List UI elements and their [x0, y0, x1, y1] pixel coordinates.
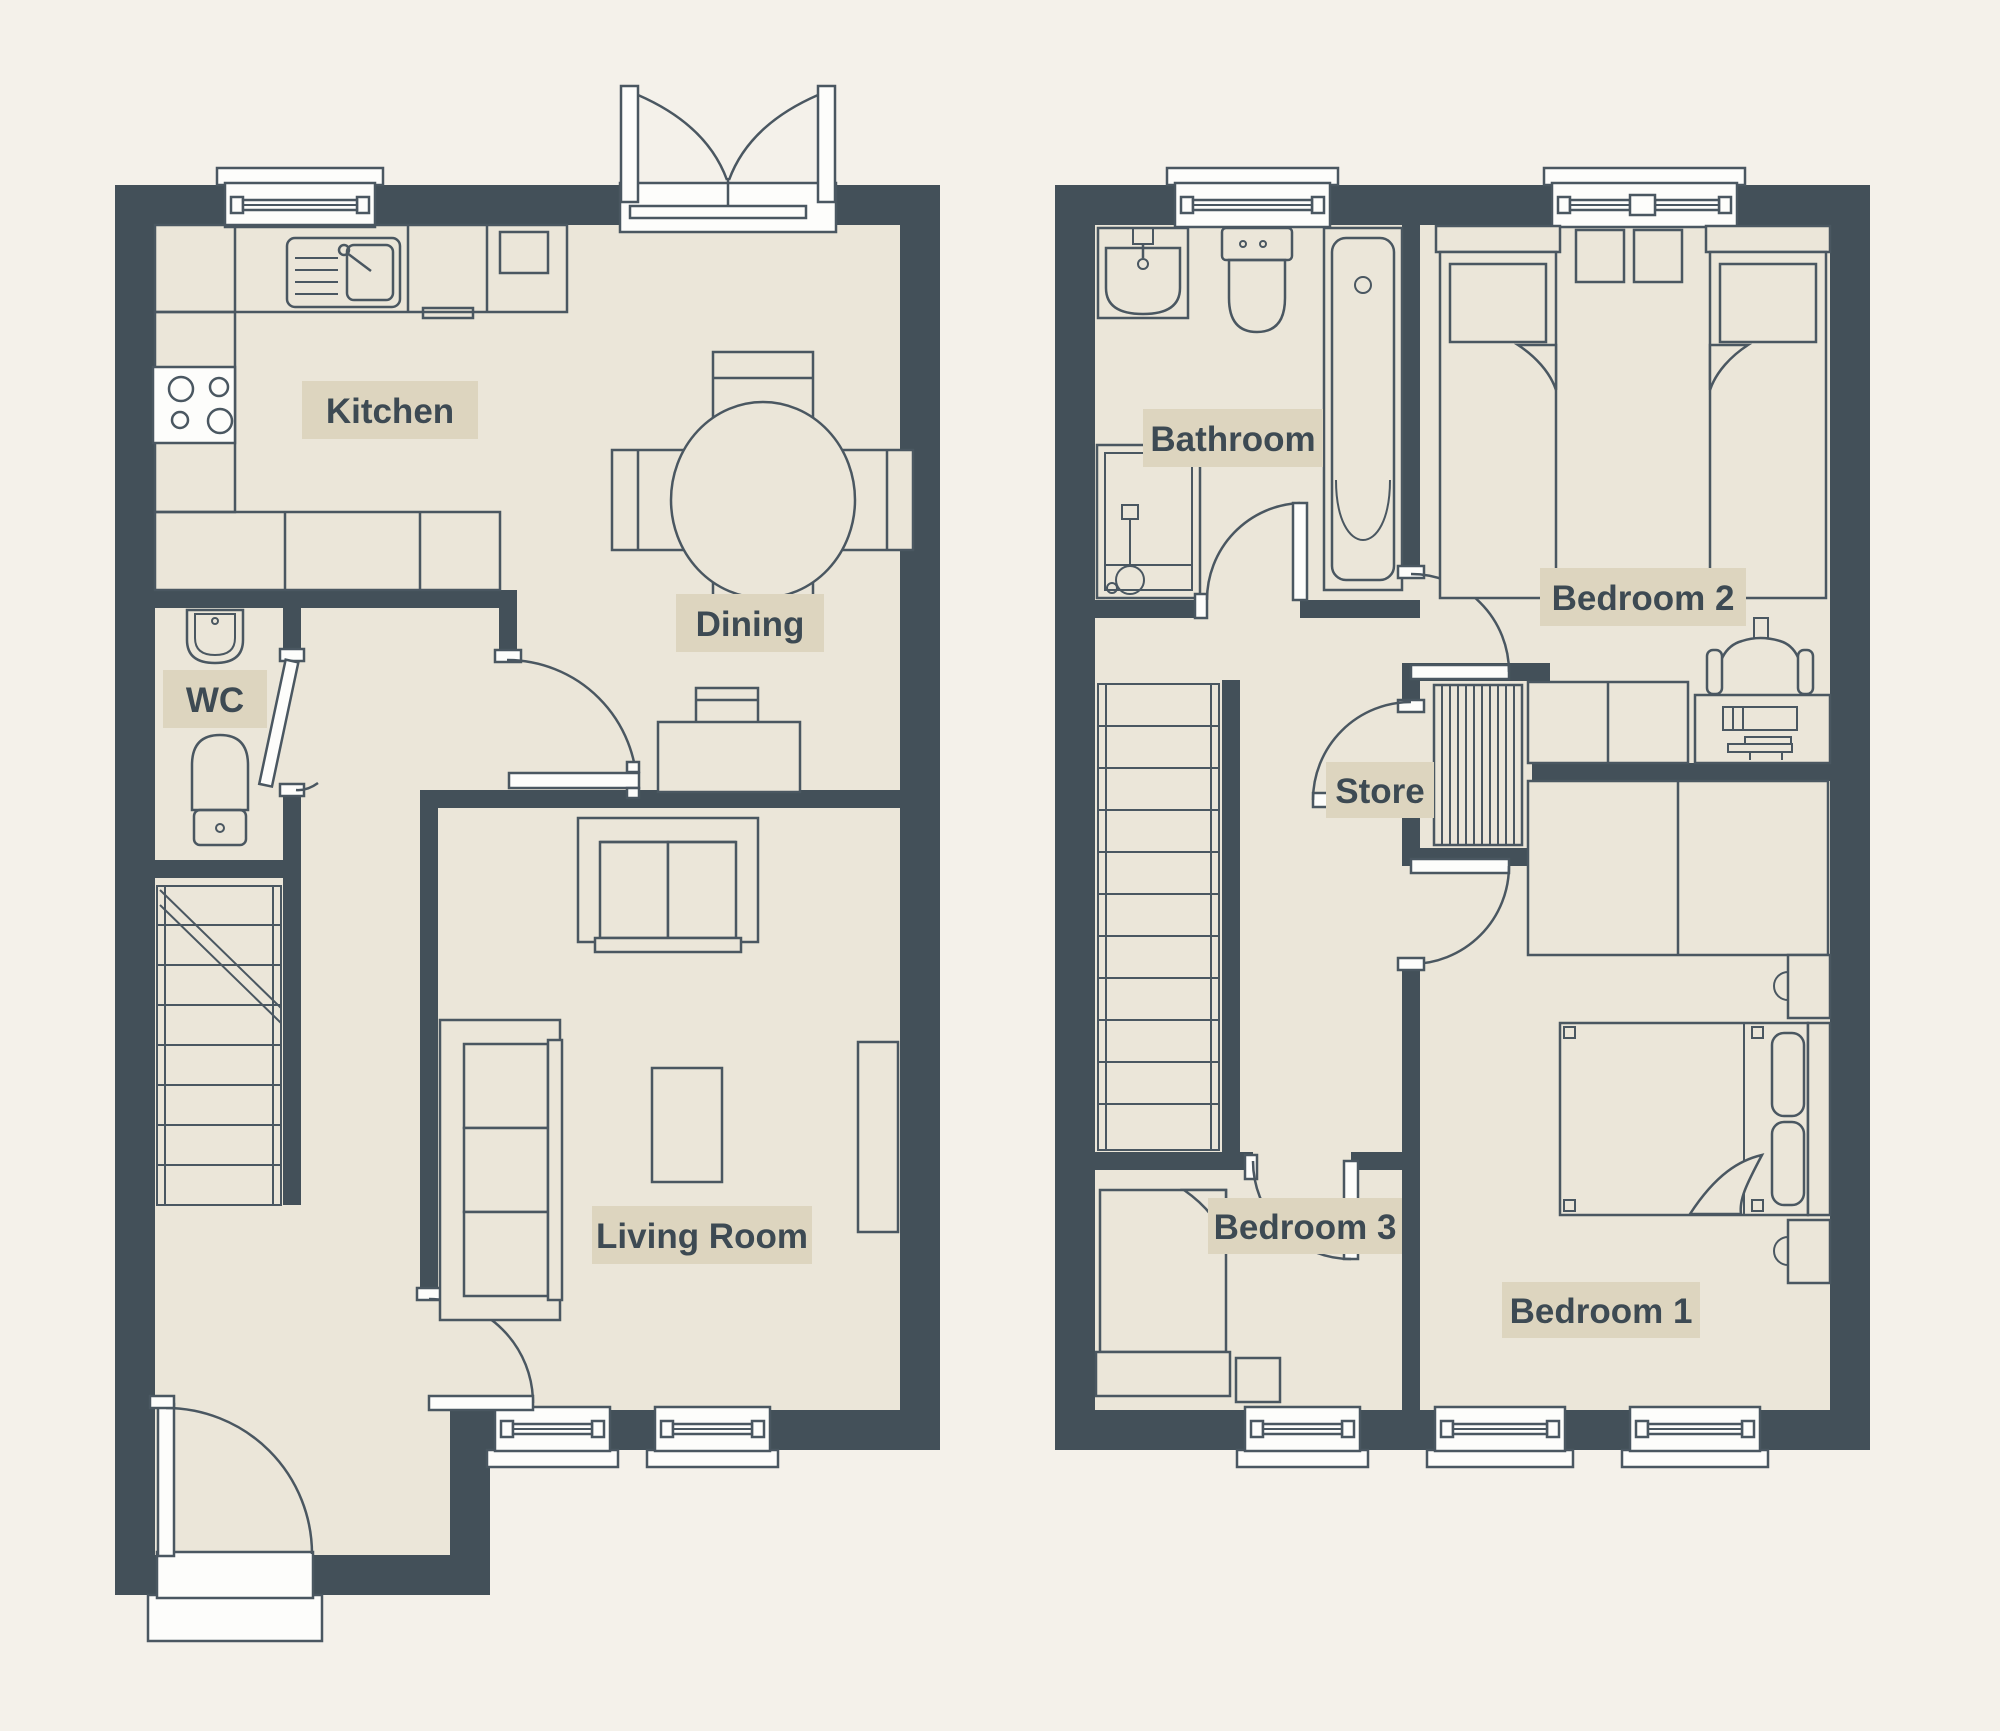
- room-label-living-room: Living Room: [592, 1206, 812, 1264]
- room-label-kitchen: Kitchen: [302, 381, 478, 439]
- living-room-window-icon: [647, 1407, 778, 1467]
- room-label-wc: WC: [163, 670, 267, 728]
- svg-text:Bedroom 2: Bedroom 2: [1552, 579, 1735, 618]
- floorplan-page: Kitchen Dining WC Living Room: [0, 0, 2000, 1731]
- ground-floor-plan: Kitchen Dining WC Living Room: [115, 86, 940, 1641]
- kitchen-window-icon: [217, 168, 383, 227]
- tv-unit-icon: [858, 1042, 898, 1232]
- room-label-dining: Dining: [676, 594, 824, 652]
- coffee-table-icon: [652, 1068, 722, 1182]
- first-floor-plan: Bathroom Bedroom 2 Store Bedroom 3 Bedro…: [1055, 168, 1870, 1467]
- bedroom1-window-icon: [1427, 1407, 1573, 1467]
- room-label-bedroom-2: Bedroom 2: [1540, 568, 1746, 626]
- bedside-table-icon: [1634, 230, 1682, 282]
- bathroom-window-icon: [1167, 168, 1338, 227]
- desk-icon: [1695, 695, 1830, 763]
- svg-text:Bedroom 3: Bedroom 3: [1214, 1208, 1397, 1247]
- bedroom1-window-icon: [1622, 1407, 1768, 1467]
- hob-icon: [153, 367, 235, 443]
- svg-text:Bedroom 1: Bedroom 1: [1510, 1292, 1693, 1331]
- bedside-table-icon: [1576, 230, 1624, 282]
- room-label-bathroom: Bathroom: [1143, 409, 1323, 467]
- svg-text:Kitchen: Kitchen: [326, 392, 454, 431]
- room-label-bedroom-1: Bedroom 1: [1502, 1282, 1700, 1338]
- double-bed-icon: [1560, 1023, 1830, 1215]
- french-doors-icon: [620, 86, 836, 232]
- wardrobe-icon: [1528, 781, 1828, 955]
- living-room-window-icon: [487, 1407, 618, 1467]
- bedroom3-window-icon: [1237, 1407, 1368, 1467]
- room-label-bedroom-3: Bedroom 3: [1208, 1198, 1402, 1254]
- svg-text:Living Room: Living Room: [596, 1217, 808, 1256]
- svg-text:Store: Store: [1335, 772, 1424, 811]
- bedroom2-window-icon: [1544, 168, 1745, 227]
- floorplan-drawing: Kitchen Dining WC Living Room: [0, 0, 2000, 1731]
- svg-text:Bathroom: Bathroom: [1150, 420, 1315, 459]
- single-bed-icon: [1706, 226, 1830, 598]
- sofa-icon: [440, 1020, 562, 1320]
- chest-of-drawers-icon: [1528, 682, 1688, 763]
- sofa-icon: [578, 818, 758, 952]
- svg-text:Dining: Dining: [696, 605, 805, 644]
- room-label-store: Store: [1326, 762, 1434, 818]
- svg-text:WC: WC: [186, 681, 244, 720]
- single-bed-icon: [1436, 226, 1560, 598]
